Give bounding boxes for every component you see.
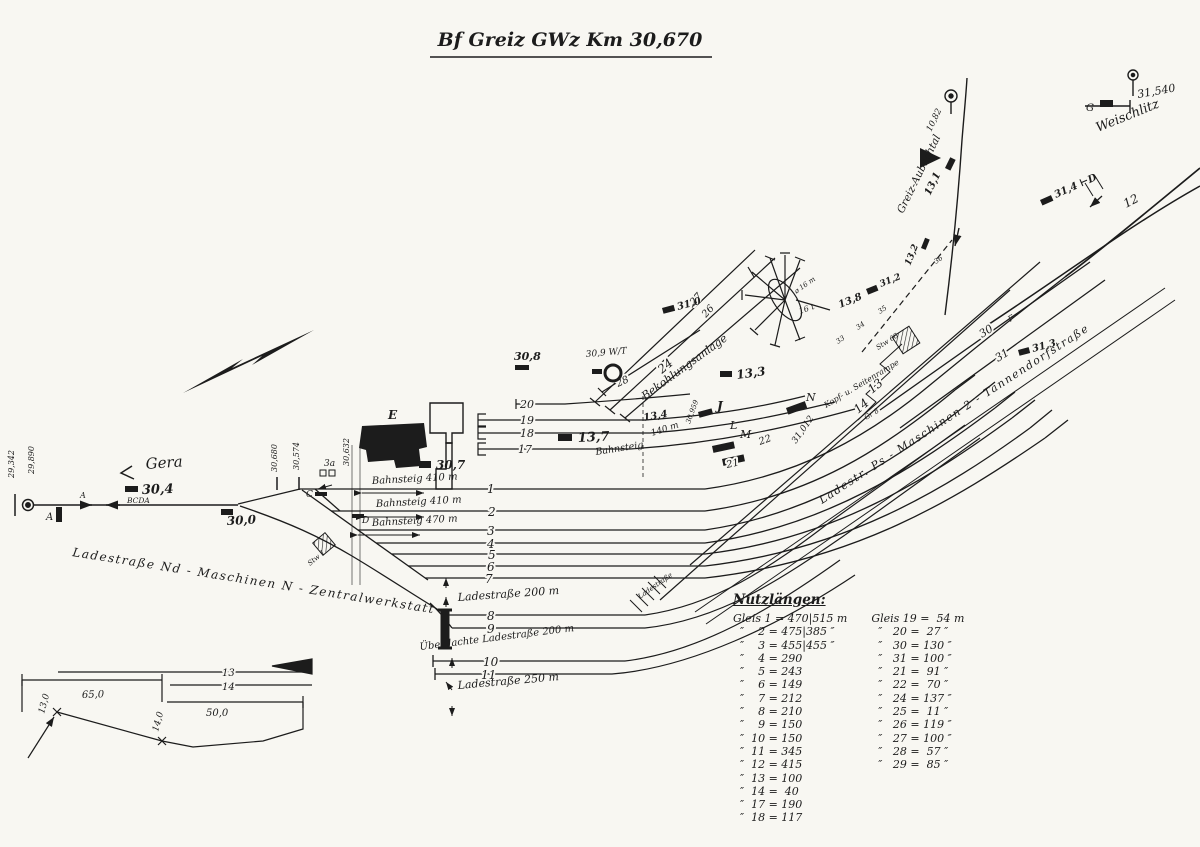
nutzlaengen-table: Nutzlängen: Gleis 1 = 470|515 m ″ 2 = 47…: [733, 592, 964, 825]
nutz-row: ″ 22 = 70 ″: [871, 678, 964, 691]
nutz-row: ″ 11 = 345: [733, 745, 847, 758]
label-bcda: BCDA: [126, 496, 150, 505]
label-lade-small: Ladestraße: [636, 571, 674, 601]
km-30-0: 30,0: [226, 512, 257, 528]
nutz-row: ″ 31 = 100 ″: [871, 652, 964, 665]
nutz-row: ″ 17 = 190: [733, 798, 847, 811]
km-post-box-31-4: [1040, 195, 1053, 205]
track-label-30: 30: [977, 322, 996, 340]
nutz-row: ″ 7 = 212: [733, 692, 847, 705]
inset-dim-14: 14,0: [151, 711, 166, 733]
label-lade200a: Ladestraße 200 m: [456, 584, 559, 604]
track-label-12: 12: [1121, 191, 1141, 210]
signal-letter-n: N: [805, 391, 816, 404]
km-post-box-31-3: [1018, 347, 1030, 356]
east-throat-tracks: [705, 168, 1200, 578]
nutz-row: ″ 26 = 119 ″: [871, 718, 964, 731]
inset-dim-50: 50,0: [206, 708, 229, 719]
km-post-box-13-2: [921, 238, 930, 250]
nutz-row: ″ 18 = 117: [733, 811, 847, 824]
nutz-row: ″ 27 = 100 ″: [871, 732, 964, 745]
km-post-box-31540: [1100, 100, 1113, 107]
nutz-row: ″ 13 = 100: [733, 772, 847, 785]
station-building: [359, 423, 427, 468]
signal-letter-j: J: [715, 399, 724, 413]
track-label-3: 3: [487, 524, 495, 538]
km-30680: 30,680: [270, 444, 279, 472]
nutz-row: ″ 28 = 57 ″: [871, 745, 964, 758]
km-post-box-13-7: [558, 434, 572, 441]
label-gera: Gera: [145, 452, 183, 473]
nutzlaengen-left-column: Gleis 1 = 470|515 m ″ 2 = 475|385 ″ ″ 3 …: [733, 612, 847, 825]
km-10-82: 10,82: [925, 107, 945, 133]
switch-33: 33: [835, 334, 847, 346]
km-post-box-30-9: [592, 369, 602, 374]
track-plan-sheet: Bf Greiz GWz Km 30,670 Gera A A 29,342 2…: [0, 0, 1200, 847]
nutz-row: ″ 6 = 149: [733, 678, 847, 691]
nutzlaengen-right-column: Gleis 19 = 54 m ″ 20 = 27 ″ ″ 30 = 130 ″…: [871, 612, 964, 825]
km-30-7: 30,7: [436, 458, 466, 472]
signal-letter-g: G: [1086, 103, 1094, 114]
lightning-arrow-icon: [183, 330, 314, 393]
switch-35: 35: [877, 304, 889, 316]
switch-34: 34: [855, 320, 867, 332]
km-post-box-30-8: [515, 365, 529, 370]
track-plan-drawing: Bf Greiz GWz Km 30,670 Gera A A 29,342 2…: [0, 0, 1200, 847]
nutz-row: ″ 8 = 210: [733, 705, 847, 718]
track-label-20: 20: [519, 398, 534, 411]
track-label-8: 8: [487, 609, 495, 623]
switch-36: 36: [933, 254, 945, 266]
track-label-26: 26: [699, 303, 717, 321]
nutz-row: Gleis 1 = 470|515 m: [733, 612, 847, 625]
stub-track-labels: 20 19 18 17: [518, 398, 534, 456]
page-title: Bf Greiz GWz Km 30,670: [437, 29, 703, 51]
depot-tracks: [590, 250, 830, 422]
km-post-box-30-4: [125, 486, 138, 492]
km-post-box-31-0: [662, 305, 675, 314]
km-31-2: 31,2: [878, 272, 902, 289]
nutz-row: ″ 2 = 475|385 ″: [733, 625, 847, 638]
km-post-box-13-3: [720, 371, 732, 377]
nutz-row: ″ 21 = 91 ″: [871, 665, 964, 678]
signal-a-flag: [56, 507, 62, 522]
inset-track-14: 14: [222, 682, 235, 693]
km-13-1: 13,1: [923, 171, 944, 198]
nutzlaengen-title: Nutzlängen:: [733, 592, 964, 608]
km-30959: 30,959: [684, 398, 700, 424]
inset-dim-65: 65,0: [82, 689, 105, 701]
km-30-9: 30,9 W/T: [585, 346, 628, 360]
track-label-2: 2: [487, 505, 496, 519]
km-post-box-13-1: [945, 157, 956, 170]
nutz-row: ″ 3 = 455|455 ″: [733, 639, 847, 652]
water-crane-icon: [605, 365, 621, 381]
nutz-row: ″ 12 = 415: [733, 758, 847, 771]
km-30632: 30,632: [342, 438, 351, 466]
signal-letter-a: A: [45, 512, 53, 523]
km-13-8: 13,8: [837, 291, 864, 310]
km-29890: 29,890: [27, 446, 36, 475]
signal-letter-m: M: [739, 428, 752, 441]
track-label-28: 28: [614, 374, 631, 390]
marker-3a: [320, 470, 335, 476]
turntable-capacity: 16 t: [798, 302, 817, 316]
km-29342: 29,342: [7, 450, 16, 479]
label-stw1: Stw 1: [306, 548, 327, 567]
label-3a: 3a: [324, 459, 335, 469]
nutz-row: ″ 14 = 40: [733, 785, 847, 798]
track-label-1: 1: [487, 482, 495, 496]
nutz-row: ″ 9 = 150: [733, 718, 847, 731]
inset-dim-13: 13,0: [37, 693, 52, 715]
nutz-row: ″ 10 = 150: [733, 732, 847, 745]
track-label-21: 21: [724, 458, 740, 472]
km-13-4: 13,4: [643, 409, 669, 424]
platform-edge-c: [315, 492, 327, 496]
km-13-2: 13,2: [904, 243, 921, 267]
signal-letter-l: L: [729, 419, 737, 432]
inset-track-13: 13: [222, 668, 235, 679]
km-31-0: 31,0: [676, 296, 702, 313]
signal-letter-a2: A: [79, 491, 86, 500]
nutz-row: ″ 5 = 243: [733, 665, 847, 678]
nutz-row: ″ 25 = 11 ″: [871, 705, 964, 718]
nutz-row: ″ 20 = 27 ″: [871, 625, 964, 638]
km-13-3: 13,3: [735, 364, 766, 382]
label-ladestr-left: Ladestraße Nd - Maschinen N - Zentralwer…: [71, 545, 437, 616]
track-label-7: 7: [485, 572, 493, 586]
track-label-10: 10: [483, 655, 499, 669]
track-label-22: 22: [756, 433, 773, 448]
km-31012: 31,012: [790, 414, 816, 446]
inset-profile-diagram: [22, 659, 312, 758]
nutz-row: ″ 29 = 85 ″: [871, 758, 964, 771]
km-13-7: 13,7: [577, 429, 609, 446]
nutz-row: ″ 24 = 137 ″: [871, 692, 964, 705]
turntable-diameter: ⌀ 16 m: [793, 275, 818, 296]
km-post-box-31-2: [866, 285, 878, 295]
track-label-18: 18: [520, 427, 534, 440]
nutz-row: ″ 30 = 130 ″: [871, 639, 964, 652]
label-140m: 140 m: [650, 421, 680, 439]
track-label-19: 19: [520, 414, 534, 427]
label-building-e: E: [387, 408, 398, 422]
km-31-4: 31,4 ⊢D: [1053, 172, 1099, 201]
label-bahnsteig-1: Bahnsteig 410 m: [371, 472, 458, 488]
label-bahnsteig-3: Bahnsteig 470 m: [371, 514, 458, 530]
km-30-8: 30,8: [514, 350, 541, 363]
km-30574: 30,574: [292, 442, 301, 470]
label-bahnsteig-2: Bahnsteig 410 m: [375, 495, 462, 511]
signal-letter-c: C: [306, 490, 313, 500]
km-post-box-30-7: [419, 461, 431, 468]
nutz-row: Gleis 19 = 54 m: [871, 612, 964, 625]
nutz-row: ″ 4 = 290: [733, 652, 847, 665]
platform-extent-arrows: [318, 485, 424, 535]
track-label-17: 17: [518, 443, 532, 456]
